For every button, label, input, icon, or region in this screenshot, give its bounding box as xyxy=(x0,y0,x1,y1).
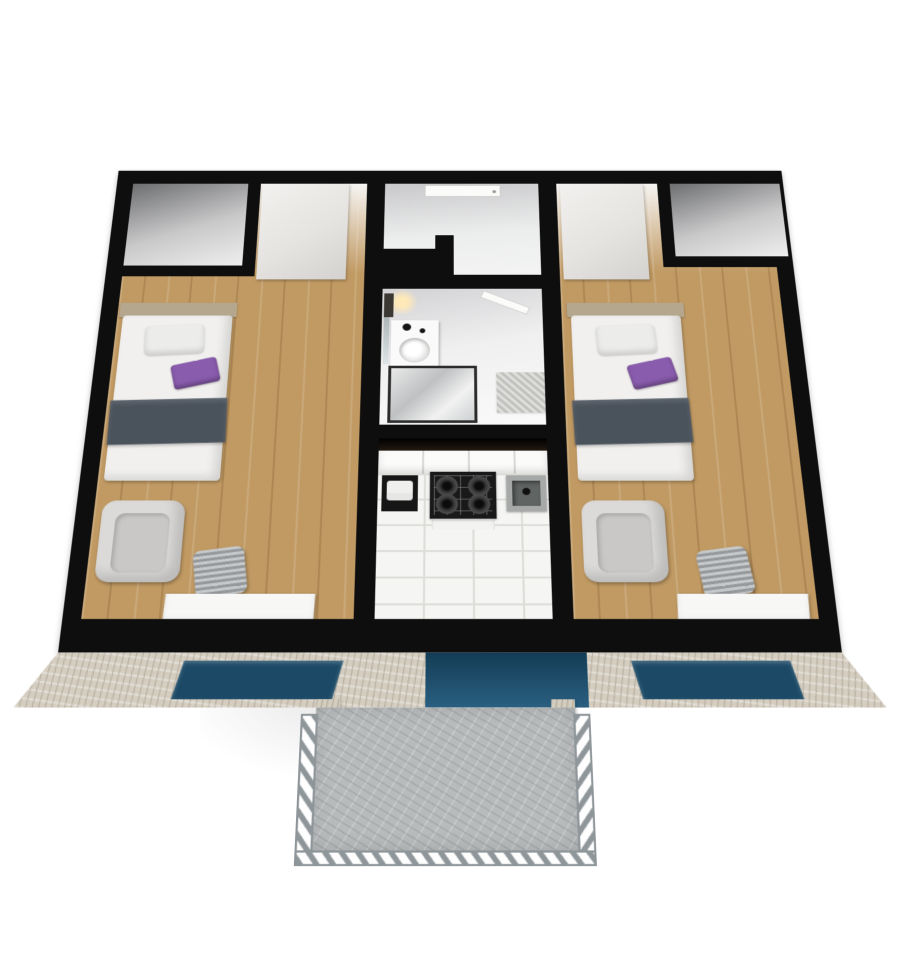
balcony-railing-right xyxy=(573,714,597,867)
bed-left xyxy=(104,303,234,481)
balcony-post-right xyxy=(551,699,576,726)
closet-top-right xyxy=(657,184,790,267)
upper-cabinets xyxy=(378,451,548,474)
gas-stove xyxy=(430,472,497,519)
burner-4 xyxy=(468,494,490,514)
amenity-jar xyxy=(420,328,426,333)
burner-1 xyxy=(436,476,458,496)
kitchen-floor xyxy=(375,451,553,619)
window-right xyxy=(631,661,805,700)
bed-right-pillow xyxy=(595,324,657,356)
wardrobe-right xyxy=(560,184,650,280)
balcony-post-left xyxy=(316,699,341,726)
entrance-door-handle xyxy=(492,190,496,193)
balcony-glass-door xyxy=(425,653,589,708)
balcony-concrete-floor xyxy=(310,708,580,851)
desk-right xyxy=(677,594,810,623)
entry-hall-floor xyxy=(383,184,541,275)
entrance-door xyxy=(425,185,501,197)
bed-left-blanket xyxy=(107,398,228,445)
wall-bottom xyxy=(58,619,842,653)
wardrobe-left xyxy=(256,184,349,280)
kitchen-appliance xyxy=(381,475,418,511)
balcony-railing-front xyxy=(294,850,597,866)
amenity-bottle xyxy=(403,324,412,331)
oven-front xyxy=(432,519,495,530)
bathroom-door xyxy=(480,290,530,315)
armchair-right xyxy=(581,500,670,582)
bed-right-blanket xyxy=(572,398,694,445)
bed-right xyxy=(570,303,694,481)
apartment-plan xyxy=(58,171,842,653)
hall-l-wall-notch xyxy=(435,235,454,261)
burner-2 xyxy=(468,476,490,496)
kitchen-sink-bowl xyxy=(512,481,541,506)
wall-hall-bath-right xyxy=(526,275,541,289)
exterior-facade xyxy=(13,653,886,708)
appliance-trays xyxy=(387,481,413,494)
balcony xyxy=(294,708,597,867)
window-left xyxy=(171,661,344,700)
bed-left-pillow xyxy=(144,324,204,356)
desk-left xyxy=(162,594,315,623)
stove-grate xyxy=(434,475,493,515)
desk-chair-left xyxy=(192,545,247,599)
bathroom-floor xyxy=(379,289,546,425)
bath-towel xyxy=(384,293,394,317)
bath-mirror xyxy=(383,317,390,364)
closet-top-left xyxy=(122,184,261,277)
kitchen-sink xyxy=(506,475,547,511)
shower-enclosure xyxy=(387,366,477,423)
sink-basin xyxy=(399,338,430,362)
tilted-view xyxy=(31,171,869,867)
armchair-left xyxy=(94,500,186,582)
floor-plan-scene xyxy=(0,0,900,960)
kitchen-back-band xyxy=(379,438,547,450)
desk-chair-right xyxy=(695,545,757,599)
kitchen-faucet xyxy=(522,488,530,495)
burner-3 xyxy=(436,494,458,514)
balcony-railing-left xyxy=(294,714,318,867)
wall-bath-kitchen xyxy=(379,425,547,439)
wall-hall-bath-left xyxy=(383,275,486,289)
